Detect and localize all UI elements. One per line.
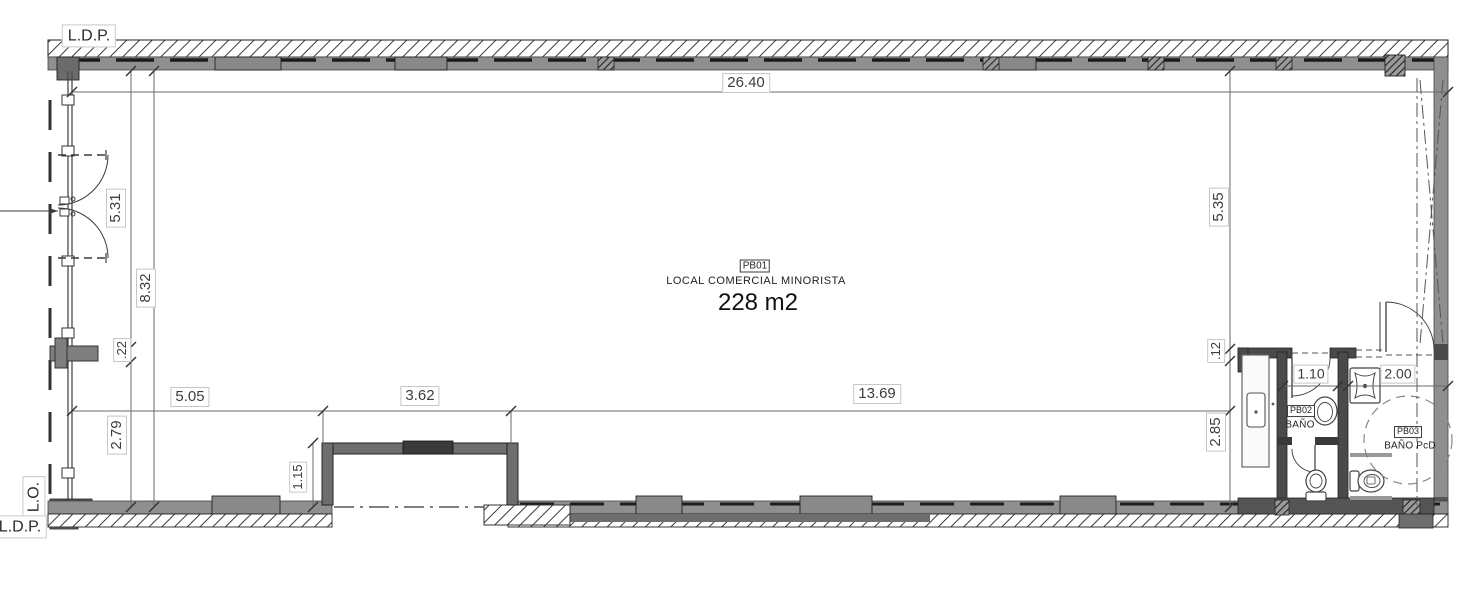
sanitary-block (1238, 302, 1452, 528)
boundary-label-ldp-top: L.D.P. (62, 24, 116, 47)
dim-accessible-bath-width: 2.00 (1380, 365, 1415, 384)
washbasin-icon (1313, 397, 1337, 425)
dim-left-lower: 2.79 (107, 415, 127, 454)
entrance-double-door (0, 150, 108, 263)
dim-left-total: 8.32 (136, 268, 156, 307)
floor-plan: L.D.P. L.O. L.D.P. 26.40 5.31 8.32 .22 2… (0, 0, 1461, 591)
dim-recess-depth: 1.15 (289, 461, 307, 492)
room-code-pb03: PB03 (1394, 426, 1422, 438)
room-area-main: 228 m2 (718, 289, 798, 317)
entrance-recess (322, 441, 518, 505)
dim-seg-a: 5.05 (170, 387, 209, 407)
wc-door (1292, 445, 1315, 472)
dim-right-upper: 5.35 (1209, 187, 1229, 226)
room-code-pb01: PB01 (740, 260, 770, 273)
boundary-label-ldp-bottom: L.D.P. (0, 515, 47, 538)
accessible-toilet-icon (1350, 455, 1392, 498)
threshold-hatch (484, 505, 570, 525)
dim-stub: .22 (113, 338, 131, 362)
recess-door (403, 441, 453, 454)
dim-right-lower: 2.85 (1206, 412, 1226, 451)
left-facade (50, 71, 98, 529)
dim-bath-width: 1.10 (1293, 365, 1328, 384)
dim-left-door: 5.31 (106, 188, 126, 227)
accessible-bath-door (1380, 302, 1434, 352)
dim-seg-b: 13.69 (853, 384, 901, 404)
dim-total-width: 26.40 (722, 73, 770, 93)
room-name-main: LOCAL COMERCIAL MINORISTA (666, 275, 846, 287)
counter-sink (1242, 355, 1274, 467)
dim-recess-width: 3.62 (400, 386, 439, 406)
room-code-pb02: PB02 (1287, 405, 1315, 417)
dim-wall-thickness: .12 (1207, 339, 1225, 363)
boundary-label-lo: L.O. (22, 476, 45, 518)
toilet-icon (1306, 470, 1326, 501)
room-name-bath: BAÑO (1285, 420, 1314, 431)
room-name-accessible-bath: BAÑO PcD (1384, 441, 1436, 452)
